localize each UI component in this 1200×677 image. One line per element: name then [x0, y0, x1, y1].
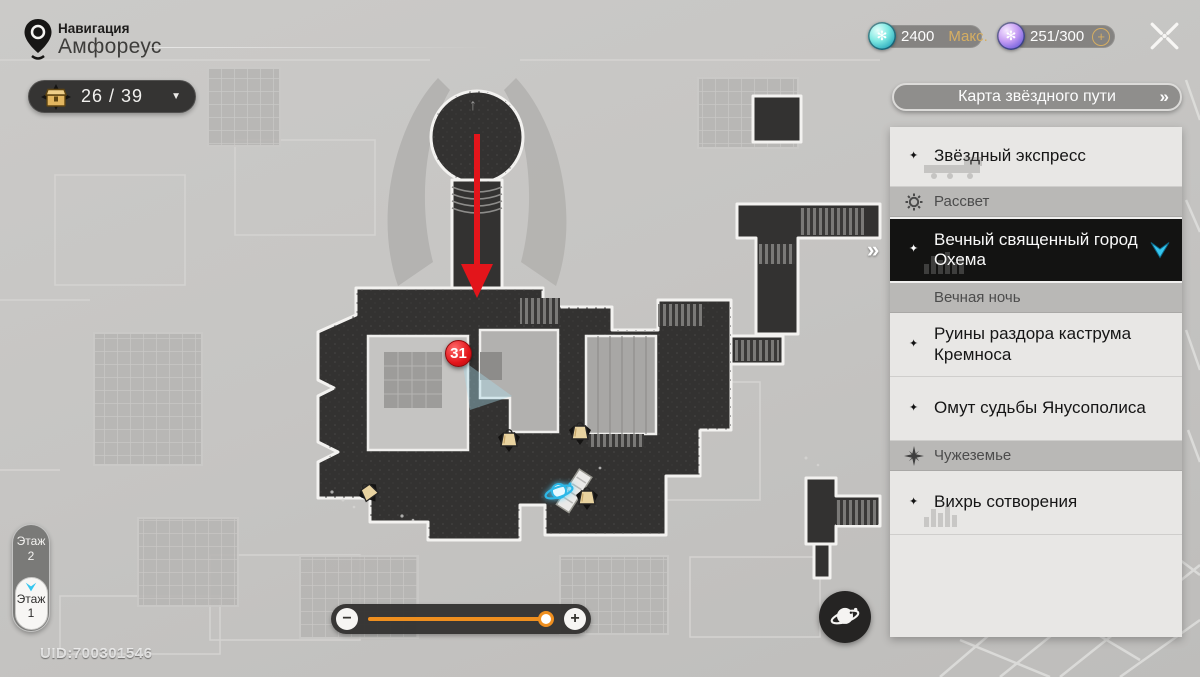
sidebar-item-label: Омут судьбы Янусополиса: [934, 398, 1146, 418]
star-icon: ✦: [909, 150, 918, 163]
zoom-out-button[interactable]: −: [336, 608, 358, 630]
world-list: ✦ Звёздный экспресс Рассвет » ✦ Вечный с…: [890, 127, 1182, 637]
shop-bag-marker[interactable]: [497, 424, 521, 452]
sidebar-item-janusopolis[interactable]: ✦ Омут судьбы Янусополиса: [890, 377, 1182, 441]
zoom-slider-track[interactable]: [368, 617, 548, 621]
player-uid: UID:700301546: [40, 645, 152, 662]
map-screen: ↑ 31 Навигация Амфореус: [0, 0, 1200, 677]
star-rail-map-label: Карта звёздного пути: [958, 88, 1116, 106]
sidebar-header-eternal-night[interactable]: Вечная ночь: [890, 283, 1182, 313]
star-icon: ✦: [909, 338, 918, 351]
page-title: Амфореус: [58, 35, 162, 59]
star-rail-map-button[interactable]: Карта звёздного пути »: [892, 83, 1182, 111]
double-chevron-icon: »: [1160, 87, 1167, 107]
floor-2-option[interactable]: Этаж 2: [13, 525, 49, 564]
header-divider: [150, 47, 495, 48]
map-marker-31[interactable]: 31: [445, 340, 472, 367]
sidebar-item-label: Руины раздора каструма Кремноса: [934, 324, 1148, 365]
star-icon: ✦: [909, 243, 918, 256]
location-pin-icon: [21, 17, 55, 61]
collectibles-counter[interactable]: 26 / 39 ▼: [28, 80, 196, 113]
sidebar-item-vortex-of-genesis[interactable]: ✦ Вихрь сотворения: [890, 471, 1182, 535]
sidebar-header-outlands[interactable]: Чужеземье: [890, 441, 1182, 471]
sidebar-item-label: Звёздный экспресс: [934, 146, 1086, 166]
compass-star-icon: [904, 446, 924, 466]
floor-upper-label: Этаж: [13, 534, 49, 549]
selected-indicator-icon: »: [867, 237, 876, 263]
plaza-up-arrow-icon: ↑: [469, 97, 477, 115]
shop-bag-marker[interactable]: [568, 417, 592, 445]
nav-label: Навигация: [58, 21, 129, 36]
chest-count: 26 / 39: [81, 86, 143, 107]
floor-lower-label: Этаж: [16, 592, 47, 606]
reserve-power-icon: ✻: [997, 22, 1025, 50]
sidebar-header-label: Чужеземье: [934, 447, 1011, 464]
trailblaze-power-pill[interactable]: ✻ 2400 Макс.: [882, 25, 982, 48]
zoom-in-button[interactable]: +: [564, 608, 586, 630]
trailblaze-power-value: 2400: [901, 28, 934, 45]
floor-1-option-selected[interactable]: Этаж 1: [15, 577, 48, 630]
zoom-slider-knob[interactable]: [538, 611, 554, 627]
chest-icon: [41, 84, 71, 110]
trailblaze-power-icon: ✻: [868, 22, 896, 50]
floor-chevron-icon: [24, 582, 38, 592]
sidebar-item-kremnos-ruins[interactable]: ✦ Руины раздора каструма Кремноса: [890, 313, 1182, 377]
sun-icon: [904, 192, 924, 212]
chevron-down-icon[interactable]: ▼: [171, 91, 181, 102]
shop-bag-marker[interactable]: [575, 482, 599, 510]
reserve-power-value: 251/300: [1030, 28, 1084, 45]
trailblaze-power-max-label: Макс.: [948, 28, 987, 45]
floor-lower-value: 1: [16, 606, 47, 620]
sidebar-item-okhema-selected[interactable]: » ✦ Вечный священный город Охема: [890, 217, 1182, 283]
reserve-power-pill[interactable]: ✻ 251/300 +: [1011, 25, 1115, 48]
space-anchor-button[interactable]: [819, 591, 871, 643]
add-power-button[interactable]: +: [1092, 28, 1110, 46]
floor-selector[interactable]: Этаж 2 Этаж 1: [12, 524, 50, 632]
space-anchor-marker[interactable]: [543, 478, 575, 506]
floor-upper-value: 2: [13, 549, 49, 564]
sidebar-item-label: Вечный священный город Охема: [934, 230, 1148, 271]
close-icon[interactable]: [1146, 21, 1182, 51]
star-icon: ✦: [909, 496, 918, 509]
sidebar-header-dawn[interactable]: Рассвет: [890, 187, 1182, 217]
sidebar-header-label: Вечная ночь: [934, 289, 1021, 306]
planet-icon: [829, 601, 861, 633]
map-zoom-control: − +: [331, 604, 591, 634]
sidebar-item-label: Вихрь сотворения: [934, 492, 1077, 512]
sidebar-item-star-express[interactable]: ✦ Звёздный экспресс: [890, 127, 1182, 187]
sidebar-filler: [890, 535, 1182, 637]
sidebar-header-label: Рассвет: [934, 193, 989, 210]
moon-icon: [904, 288, 924, 308]
star-icon: ✦: [909, 402, 918, 415]
teleport-chevron-icon: [1149, 242, 1171, 259]
